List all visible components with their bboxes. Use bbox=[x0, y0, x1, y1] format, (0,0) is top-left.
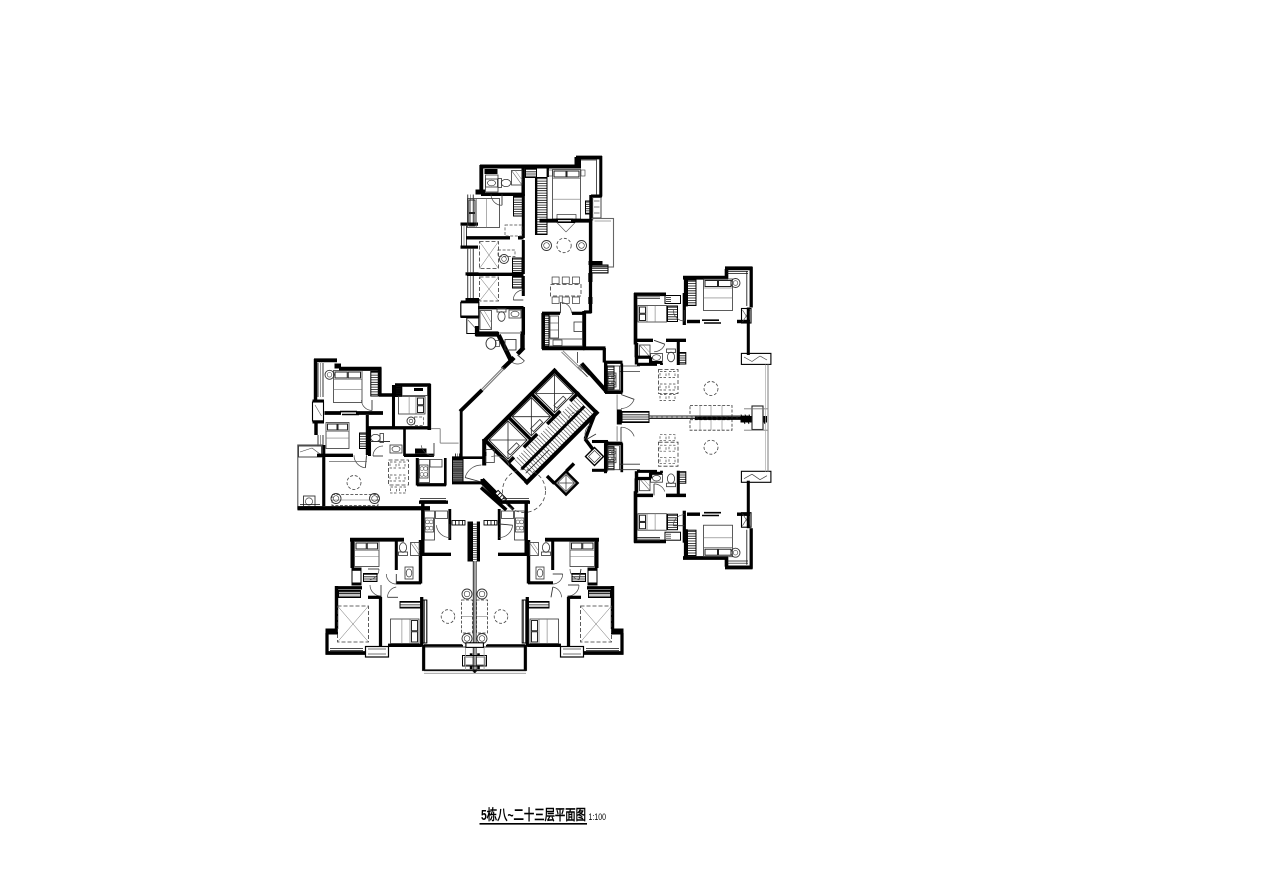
svg-text:5栋八~二十三层平面图: 5栋八~二十三层平面图 bbox=[481, 806, 586, 824]
svg-text:1:100: 1:100 bbox=[589, 812, 607, 823]
